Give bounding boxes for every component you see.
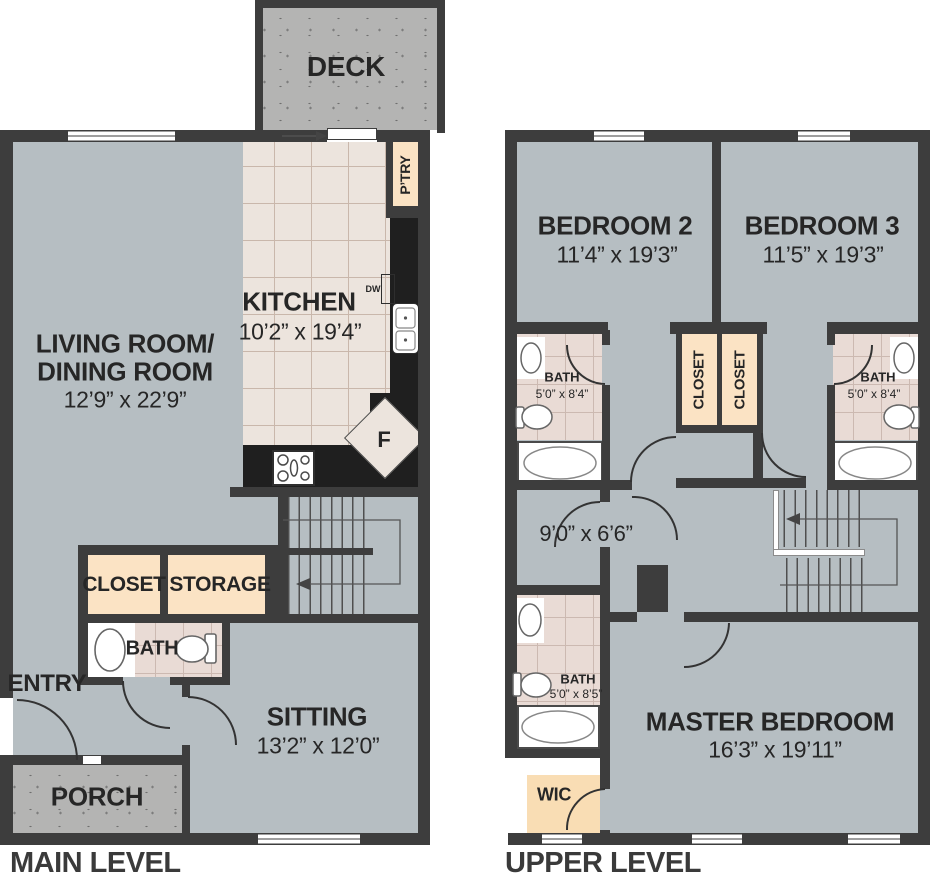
wall bbox=[505, 130, 594, 142]
dishwasher-label: DW bbox=[366, 284, 381, 294]
porch-threshold bbox=[82, 755, 102, 765]
wall bbox=[900, 833, 930, 845]
wall bbox=[676, 478, 806, 488]
wall bbox=[102, 755, 190, 765]
floor-plan: DECK LIVING ROOM/ DINING ROOM 12’9” x 22… bbox=[0, 0, 937, 877]
wall bbox=[78, 614, 430, 623]
porch-label: PORCH bbox=[51, 782, 143, 813]
wall bbox=[602, 385, 610, 490]
fridge-label: F bbox=[377, 427, 390, 453]
master-bath-tub bbox=[517, 705, 600, 749]
wall bbox=[175, 130, 255, 142]
kitchen-sink bbox=[392, 303, 419, 354]
master-bedroom-dims: 16’3” x 19’11” bbox=[708, 737, 841, 764]
wall bbox=[505, 749, 605, 758]
dining-room-label: DINING ROOM bbox=[37, 357, 213, 388]
closet-wall bbox=[757, 334, 763, 432]
wall bbox=[670, 322, 767, 334]
wall bbox=[827, 330, 835, 345]
closet-wall bbox=[717, 334, 722, 432]
bedroom2-dims: 11’4” x 19’3” bbox=[557, 242, 678, 269]
master-bedroom-label: MASTER BEDROOM bbox=[646, 707, 895, 738]
wall bbox=[78, 545, 288, 555]
master-bath-dims: 5’0” x 8’5” bbox=[550, 687, 603, 701]
bath-label: BATH bbox=[126, 638, 179, 661]
wall bbox=[0, 758, 13, 845]
wall bbox=[600, 490, 610, 502]
bath2-label: BATH bbox=[544, 370, 579, 385]
main-stairs-upper-flight bbox=[288, 490, 373, 548]
wall bbox=[508, 833, 542, 845]
storage-label: STORAGE bbox=[169, 573, 270, 597]
window bbox=[68, 130, 175, 142]
bath3-label: BATH bbox=[860, 370, 895, 385]
upper-stairs-railing bbox=[773, 490, 779, 556]
closet-wall bbox=[676, 334, 682, 432]
pantry-label: P’TRY bbox=[397, 155, 413, 194]
wall bbox=[582, 833, 692, 845]
wall bbox=[610, 612, 637, 622]
bedroom3-dims: 11’5” x 19’3” bbox=[763, 242, 884, 269]
window bbox=[692, 833, 742, 845]
wall bbox=[684, 612, 930, 622]
main-stairs-railing bbox=[288, 548, 373, 555]
window bbox=[258, 833, 360, 845]
deck-door-threshold bbox=[327, 128, 377, 140]
bedroom2-label: BEDROOM 2 bbox=[538, 211, 693, 242]
bath2-dims: 5’0” x 8’4” bbox=[536, 387, 589, 401]
bath3-tub bbox=[832, 441, 918, 485]
wall bbox=[753, 425, 763, 480]
main-stairs-lower-flight bbox=[288, 555, 373, 614]
wall bbox=[827, 322, 930, 334]
wall bbox=[230, 487, 430, 497]
wall bbox=[222, 623, 230, 685]
deck-wall bbox=[255, 0, 445, 8]
upper-stairs-lower-flight bbox=[786, 558, 863, 614]
closet-label: CLOSET bbox=[82, 573, 165, 597]
pantry-wall bbox=[386, 142, 393, 212]
wall bbox=[182, 683, 190, 697]
wall bbox=[742, 833, 848, 845]
bedroom-divider-wall bbox=[712, 142, 721, 332]
bath2-sink-area bbox=[517, 337, 545, 379]
living-room-dims: 12’9” x 22’9” bbox=[64, 387, 187, 414]
wall bbox=[505, 480, 632, 490]
wall bbox=[0, 130, 13, 698]
entry-label: ENTRY bbox=[8, 670, 87, 698]
kitchen-dims: 10’2” x 19’4” bbox=[239, 319, 362, 346]
wall bbox=[827, 480, 930, 490]
wall bbox=[505, 130, 517, 758]
bedroom3-label: BEDROOM 3 bbox=[745, 211, 900, 242]
wall bbox=[360, 833, 430, 845]
wall bbox=[255, 130, 327, 142]
wall bbox=[0, 755, 82, 765]
deck-wall bbox=[437, 0, 445, 133]
wall bbox=[644, 130, 798, 142]
wall bbox=[505, 585, 610, 595]
upper-stairs-flight bbox=[773, 490, 863, 547]
hall-dims: 9’0” x 6’6” bbox=[539, 521, 632, 547]
kitchen-label: KITCHEN bbox=[242, 287, 355, 318]
bath2-tub bbox=[517, 441, 603, 485]
window bbox=[798, 130, 850, 142]
sitting-dims: 13’2” x 12’0” bbox=[257, 733, 380, 760]
wall bbox=[602, 330, 610, 345]
deck-label: DECK bbox=[307, 51, 385, 83]
wall bbox=[505, 322, 608, 334]
chase-block bbox=[637, 565, 668, 612]
wall bbox=[0, 833, 258, 845]
living-room-label: LIVING ROOM/ bbox=[36, 329, 214, 360]
dishwasher-box bbox=[381, 274, 395, 304]
wall bbox=[170, 677, 230, 685]
closet-right-label: CLOSET bbox=[732, 350, 749, 409]
stove bbox=[272, 450, 315, 486]
wall bbox=[827, 385, 835, 490]
window bbox=[542, 833, 582, 845]
closet-left-label: CLOSET bbox=[691, 350, 708, 409]
master-bath-sink-area bbox=[517, 598, 544, 643]
sitting-label: SITTING bbox=[267, 702, 367, 733]
pantry-wall bbox=[386, 206, 430, 218]
main-level-title: MAIN LEVEL bbox=[10, 847, 181, 877]
window bbox=[848, 833, 900, 845]
wall bbox=[182, 755, 190, 845]
bath3-dims: 5’0” x 8’4” bbox=[848, 387, 901, 401]
closet-wall bbox=[676, 425, 763, 433]
wic-label: WIC bbox=[537, 785, 571, 806]
upper-level-title: UPPER LEVEL bbox=[505, 847, 701, 877]
master-bath-label: BATH bbox=[560, 672, 595, 687]
upper-stairs-railing bbox=[773, 549, 865, 556]
window bbox=[594, 130, 644, 142]
deck-wall bbox=[255, 0, 263, 133]
